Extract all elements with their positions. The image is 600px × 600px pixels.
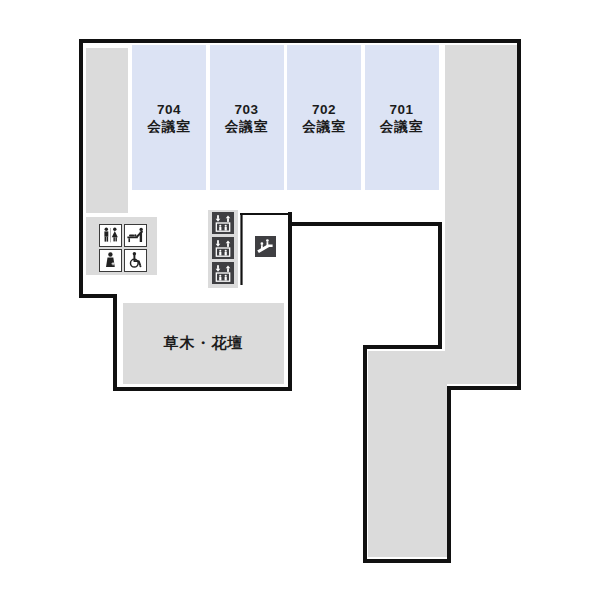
escalator-icon	[255, 236, 276, 257]
room-703: 703 会議室	[210, 45, 284, 190]
room-type-label: 会議室	[225, 118, 269, 135]
room-704: 704 会議室	[132, 45, 206, 190]
room-number: 703	[234, 101, 258, 118]
room-number: 704	[157, 101, 181, 118]
room-702: 702 会議室	[287, 45, 361, 190]
room-type-label: 会議室	[380, 118, 424, 135]
elevator-icon	[212, 212, 234, 234]
floor-map: 704 会議室 703 会議室 702 会議室 701 会議室 草木・花壇	[0, 0, 600, 600]
baby-chair-icon	[99, 249, 122, 272]
room-number: 701	[389, 101, 413, 118]
elevator-icon	[212, 262, 234, 284]
elevator-bank	[208, 210, 238, 288]
corridor-strip-left	[86, 48, 128, 213]
facility-icon-grid	[99, 224, 147, 272]
garden-area: 草木・花壇	[123, 303, 284, 384]
room-701: 701 会議室	[365, 45, 439, 190]
room-type-label: 会議室	[302, 118, 346, 135]
wheelchair-accessible-icon	[124, 249, 147, 272]
room-number: 702	[312, 101, 336, 118]
elevator-icon	[212, 237, 234, 259]
restroom-icon	[99, 224, 122, 247]
restroom-facility-panel	[86, 217, 157, 275]
baby-changing-icon	[124, 224, 147, 247]
garden-label: 草木・花壇	[164, 334, 244, 353]
room-type-label: 会議室	[147, 118, 191, 135]
